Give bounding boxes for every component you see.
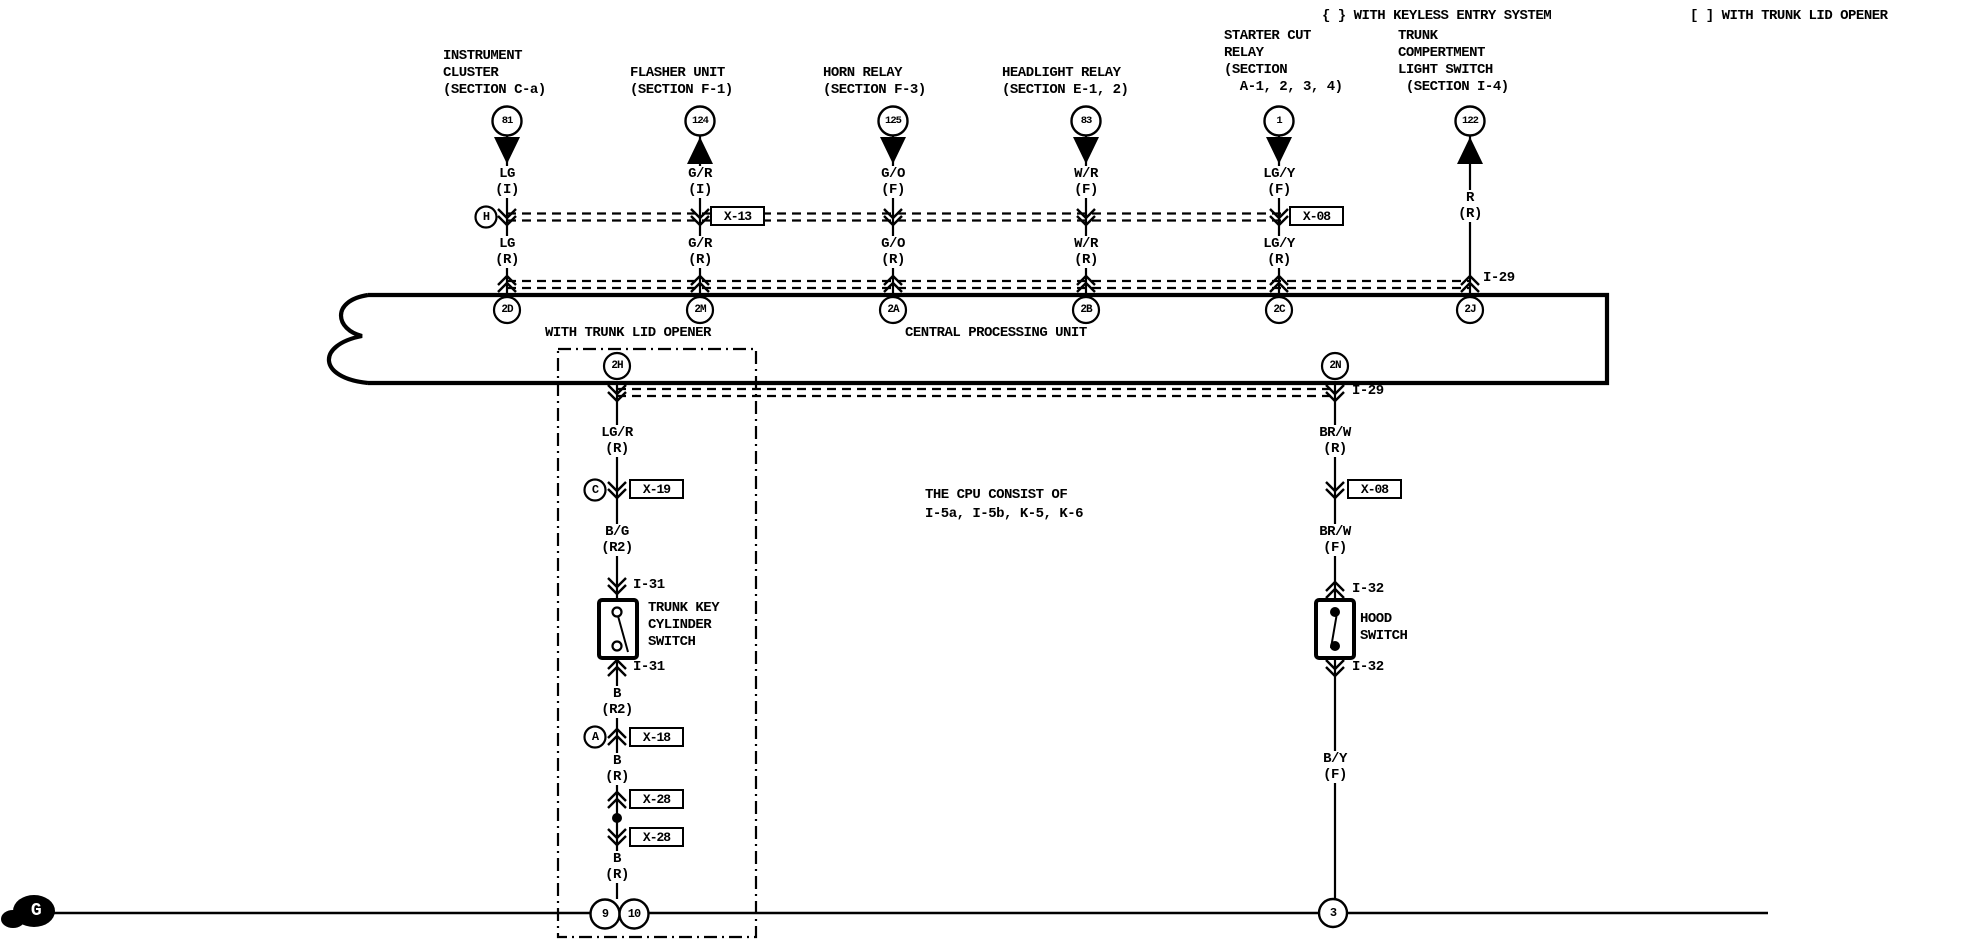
trunk-key-cylinder-switch-label: TRUNK KEY CYLINDER SWITCH: [648, 600, 719, 651]
pin-2a: 2A: [887, 304, 898, 316]
harness-bus-mid: [507, 281, 1470, 288]
ground-symbol-icon: [1, 895, 55, 928]
connector-letter-c: C: [592, 484, 598, 497]
ground-pin-3: 3: [1330, 907, 1336, 919]
pin-2d: 2D: [501, 304, 512, 316]
wire-label: B (R): [603, 753, 631, 785]
connector-box-x08: X-08: [1289, 206, 1344, 226]
connector-box-x08-branch: X-08: [1347, 479, 1402, 499]
hood-switch-symbol: [1316, 600, 1354, 658]
cpu-note: THE CPU CONSIST OF I-5a, I-5b, K-5, K-6: [925, 486, 1083, 524]
connector-letter-a: A: [592, 731, 598, 744]
ground-pin-9: 9: [602, 908, 608, 920]
ref-circle-125: 125: [885, 116, 901, 127]
legend-trunk-lid: [ ] WITH TRUNK LID OPENER: [1690, 8, 1888, 24]
arrow-up-icon: [687, 137, 713, 164]
trunk-key-cylinder-switch-symbol: [599, 600, 637, 658]
pin-2n: 2N: [1329, 360, 1340, 372]
label-flasher-unit: FLASHER UNIT (SECTION F-1): [630, 65, 733, 99]
ground-label-g: G: [31, 902, 41, 920]
wire-label: B/G (R2): [599, 524, 635, 556]
ref-circle-122: 122: [1462, 116, 1478, 127]
connector-box-x19: X-19: [629, 479, 684, 499]
pin-2c: 2C: [1273, 304, 1284, 316]
wire-label: W/R (R): [1072, 236, 1100, 268]
connector-label-i32-lower: I-32: [1352, 659, 1384, 675]
wire-label: BR/W (R): [1317, 425, 1353, 457]
connector-label-i32-upper: I-32: [1352, 581, 1384, 597]
pin-2j: 2J: [1464, 304, 1475, 316]
pin-2h: 2H: [611, 360, 622, 372]
ref-circle-124: 124: [692, 116, 708, 127]
pin-2m: 2M: [694, 304, 705, 316]
wiring-lines: [0, 0, 1970, 944]
splice-dot: [612, 813, 622, 823]
label-starter-cut-relay: STARTER CUT RELAY (SECTION A-1, 2, 3, 4): [1224, 28, 1343, 96]
option-region-title: WITH TRUNK LID OPENER: [545, 325, 711, 341]
cpu-title: CENTRAL PROCESSING UNIT: [905, 325, 1087, 341]
bus-label-i29-bottom: I-29: [1352, 383, 1384, 399]
harness-bus-lower: [617, 389, 1335, 396]
legend-keyless: { } WITH KEYLESS ENTRY SYSTEM: [1322, 8, 1551, 24]
wire-label: BR/W (F): [1317, 524, 1353, 556]
wire-label: LG/Y (R): [1261, 236, 1297, 268]
connector-box-x28-upper: X-28: [629, 789, 684, 809]
pin-2b: 2B: [1080, 304, 1091, 316]
ref-circle-83: 83: [1081, 116, 1092, 127]
arrow-down-icon: [494, 137, 520, 164]
connector-letter-h: H: [483, 211, 489, 224]
wire-label: G/O (F): [879, 166, 907, 198]
hood-switch-label: HOOD SWITCH: [1360, 611, 1407, 645]
connector-box-x18: X-18: [629, 727, 684, 747]
wire-label: G/R (I): [686, 166, 714, 198]
wiring-diagram-page: { } WITH KEYLESS ENTRY SYSTEM [ ] WITH T…: [0, 0, 1970, 944]
signal-arrow-icons: [494, 137, 1483, 164]
ref-circle-81: 81: [502, 116, 513, 127]
arrow-down-icon: [1266, 137, 1292, 164]
connector-label-i31-upper: I-31: [633, 577, 665, 593]
ref-circle-1: 1: [1276, 116, 1281, 127]
wire-label: B/Y (F): [1321, 751, 1349, 783]
section-ref-circles: [493, 107, 1485, 136]
wire-label: B (R): [603, 851, 631, 883]
label-horn-relay: HORN RELAY (SECTION F-3): [823, 65, 926, 99]
wire-label: LG (I): [493, 166, 521, 198]
wire-label: G/O (R): [879, 236, 907, 268]
arrow-down-icon: [880, 137, 906, 164]
connector-box-x13: X-13: [710, 206, 765, 226]
arrow-down-icon: [1073, 137, 1099, 164]
connector-box-x28-lower: X-28: [629, 827, 684, 847]
label-instrument-cluster: INSTRUMENT CLUSTER (SECTION C-a): [443, 48, 546, 99]
label-headlight-relay: HEADLIGHT RELAY (SECTION E-1, 2): [1002, 65, 1128, 99]
ground-pin-10: 10: [628, 908, 640, 920]
connector-label-i31-lower: I-31: [633, 659, 665, 675]
wire-label: W/R (F): [1072, 166, 1100, 198]
wire-label: G/R (R): [686, 236, 714, 268]
wire-label: LG/R (R): [599, 425, 635, 457]
wire-label: LG/Y (F): [1261, 166, 1297, 198]
wire-label: LG (R): [493, 236, 521, 268]
wire-label: R (R): [1456, 190, 1484, 222]
wire-label: B (R2): [599, 686, 635, 718]
arrow-up-icon: [1457, 137, 1483, 164]
bus-label-i29-top: I-29: [1483, 270, 1515, 286]
label-trunk-light-switch: TRUNK COMPERTMENT LIGHT SWITCH (SECTION …: [1398, 28, 1509, 96]
